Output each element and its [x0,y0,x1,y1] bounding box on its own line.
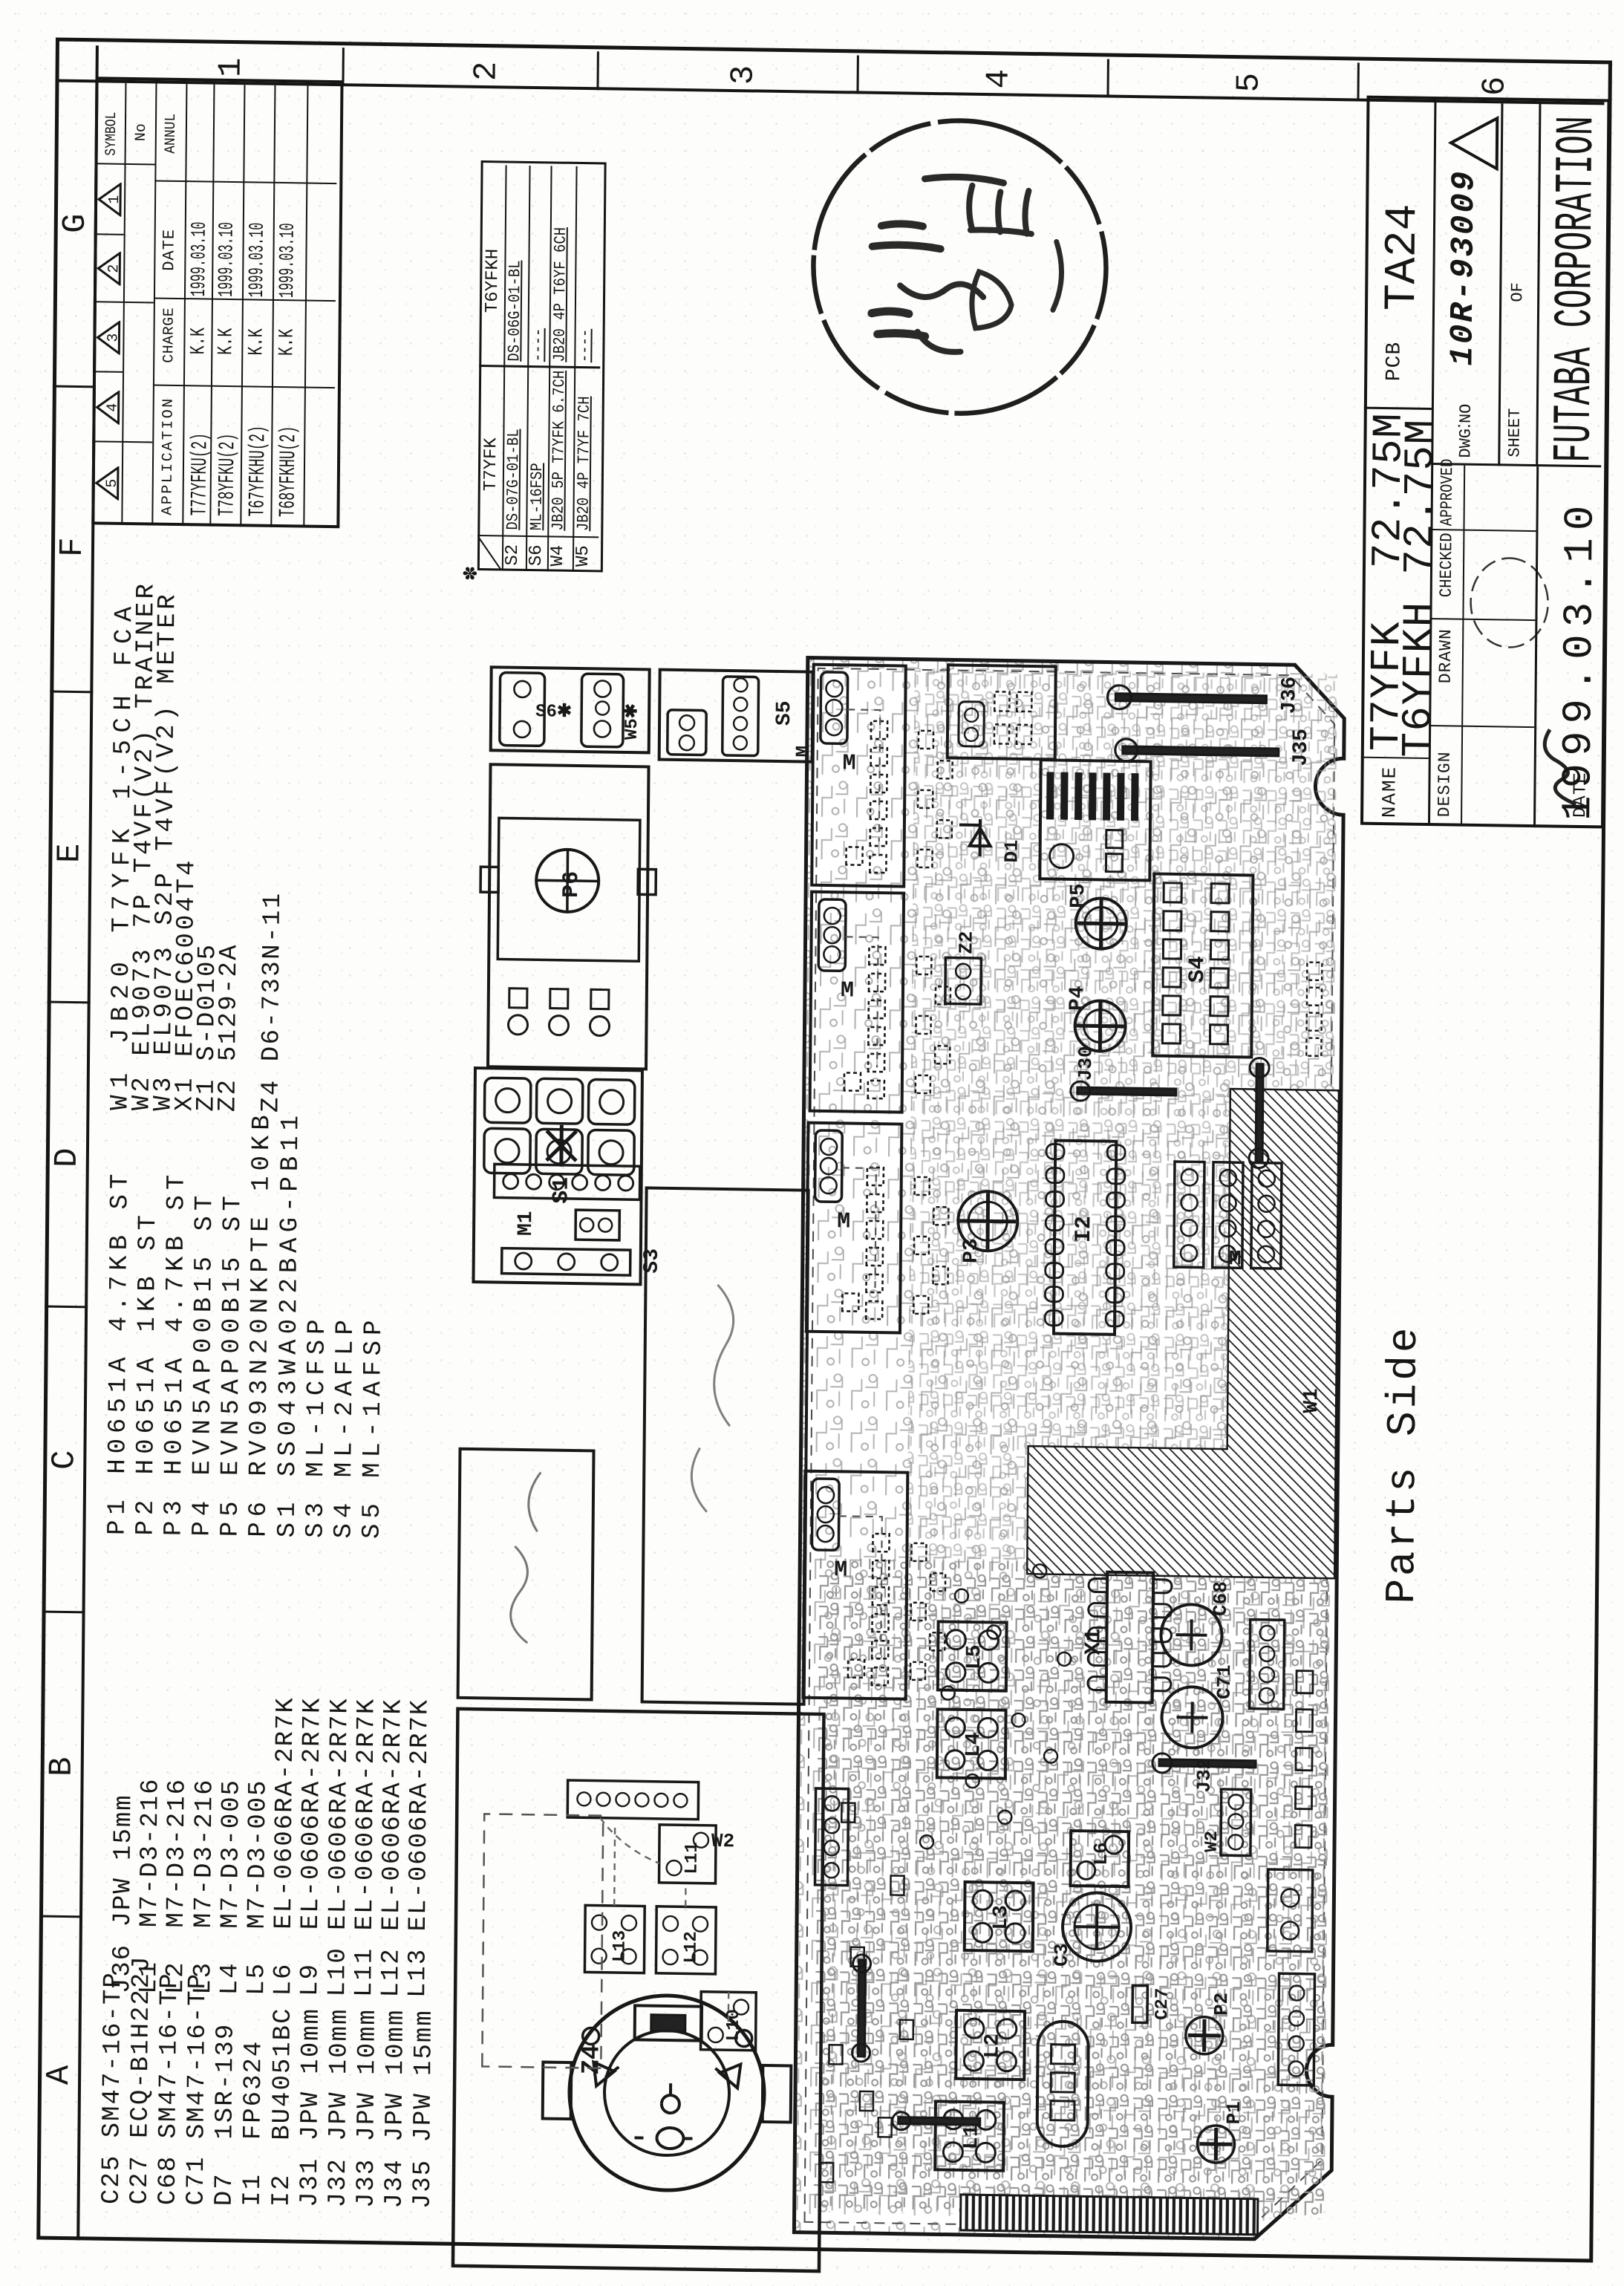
svg-text:5: 5 [104,479,120,488]
svg-text:1: 1 [106,195,123,204]
svg-text:2: 2 [105,264,122,273]
svg-text:3: 3 [105,333,121,342]
svg-text:4: 4 [105,403,121,412]
